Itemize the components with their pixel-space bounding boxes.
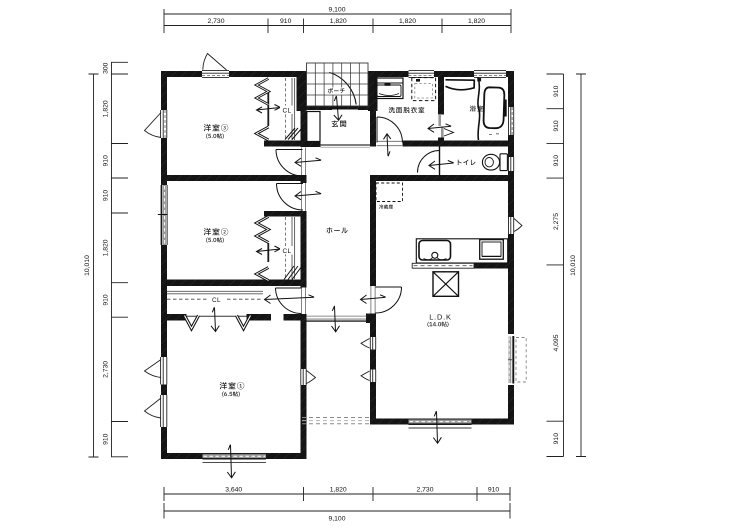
svg-text:1,820: 1,820 (468, 18, 485, 25)
svg-text:1,820: 1,820 (102, 100, 109, 117)
svg-text:1,820: 1,820 (330, 18, 347, 25)
svg-text:2,730: 2,730 (207, 18, 224, 25)
svg-text:CL: CL (212, 297, 221, 304)
svg-text:910: 910 (553, 155, 560, 167)
svg-text:2,730: 2,730 (102, 361, 109, 378)
svg-text:L.D.K: L.D.K (429, 312, 451, 321)
svg-text:910: 910 (102, 155, 109, 167)
svg-text:1,820: 1,820 (399, 18, 416, 25)
svg-text:910: 910 (553, 85, 560, 97)
svg-text:4,095: 4,095 (553, 334, 560, 351)
svg-text:2,730: 2,730 (416, 487, 433, 494)
svg-text:10,010: 10,010 (84, 255, 91, 276)
svg-text:300: 300 (102, 62, 109, 74)
svg-text:CL: CL (283, 248, 292, 255)
svg-text:9,100: 9,100 (328, 516, 345, 523)
svg-text:910: 910 (280, 18, 292, 25)
svg-text:3,640: 3,640 (225, 487, 242, 494)
svg-text:2,275: 2,275 (553, 213, 560, 230)
svg-text:910: 910 (102, 294, 109, 306)
svg-text:1,820: 1,820 (102, 239, 109, 256)
svg-text:10,010: 10,010 (570, 255, 577, 276)
svg-text:9,100: 9,100 (328, 7, 345, 14)
svg-text:910: 910 (102, 190, 109, 202)
svg-text:CL: CL (283, 108, 292, 115)
svg-text:1,820: 1,820 (330, 487, 347, 494)
svg-text:910: 910 (553, 120, 560, 132)
svg-text:910: 910 (488, 487, 500, 494)
svg-text:910: 910 (102, 433, 109, 445)
svg-text:910: 910 (553, 433, 560, 445)
